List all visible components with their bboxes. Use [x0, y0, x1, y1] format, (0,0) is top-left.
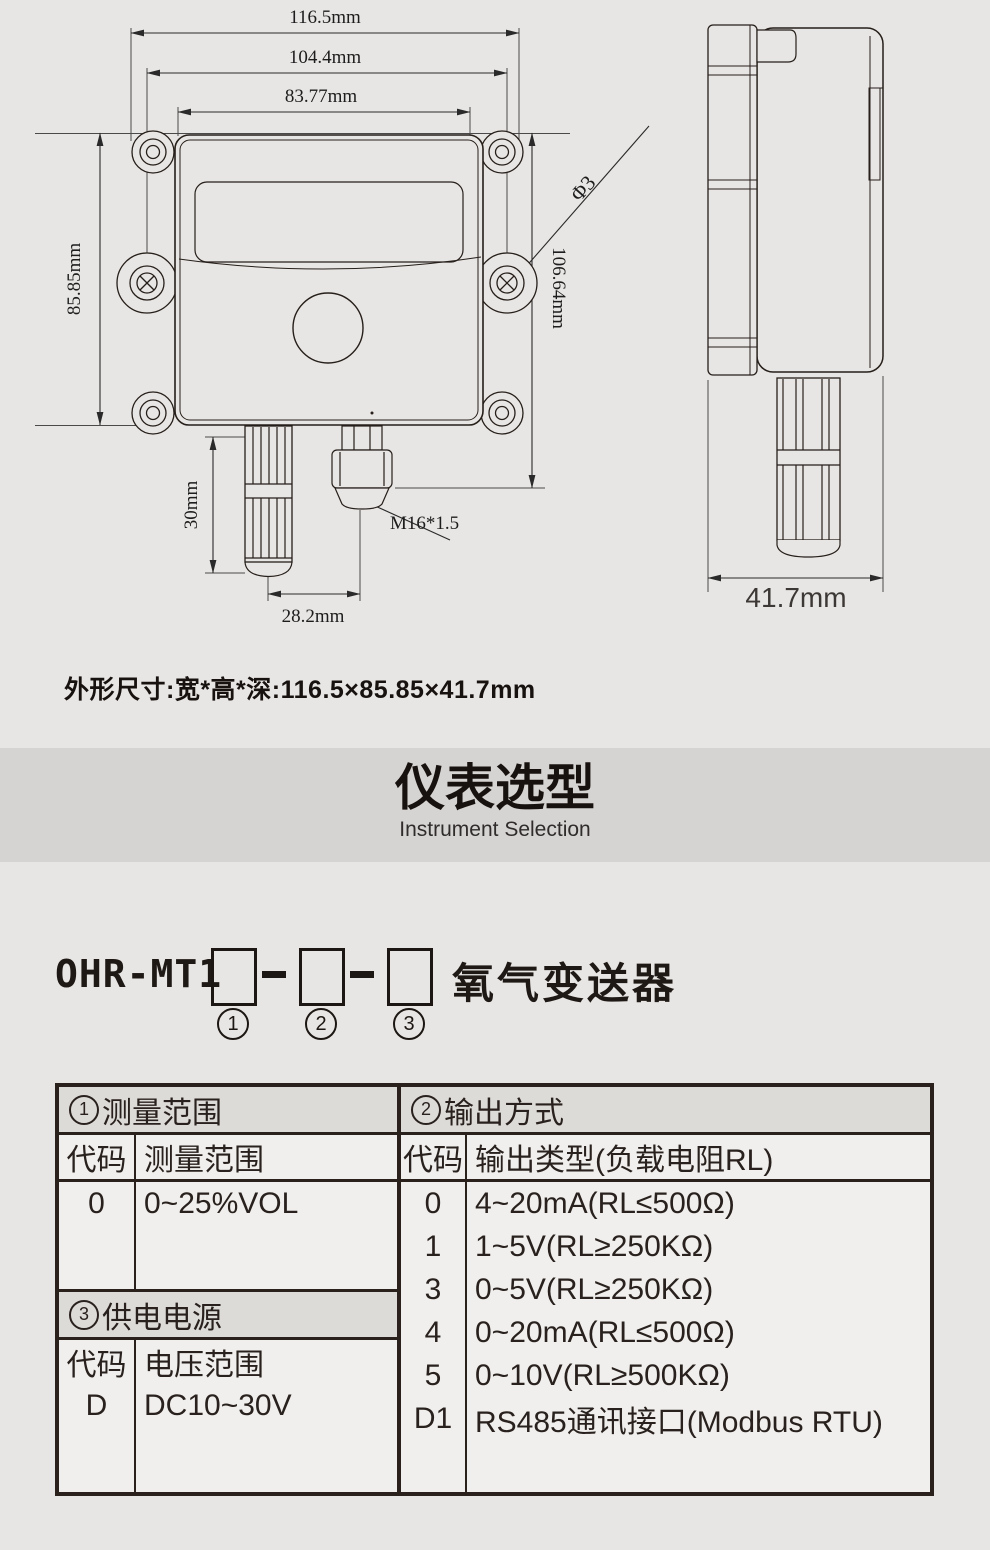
output-row-value: 1~5V(RL≥250KΩ)	[475, 1225, 713, 1268]
model-code-box-2	[299, 948, 345, 1006]
dimension-drawing: 116.5mm 104.4mm 83.77mm 85.85mm 106.64mm…	[0, 0, 990, 660]
power-row-value: DC10~30V	[144, 1384, 292, 1427]
output-row-value: 0~5V(RL≥250KΩ)	[475, 1268, 713, 1311]
output-row-code: D1	[401, 1397, 465, 1440]
position-marker-1: 1	[217, 1008, 249, 1040]
cable-gland	[332, 426, 392, 509]
output-row-code: 3	[401, 1268, 465, 1311]
hole-diameter-label: Φ3	[565, 171, 600, 206]
power-col-label: 电压范围	[144, 1340, 264, 1383]
output-row-code: 5	[401, 1354, 465, 1397]
output-col-code: 代码	[401, 1135, 465, 1179]
range-row-code: 0	[59, 1182, 134, 1225]
side-view	[708, 25, 883, 557]
range-row-value: 0~25%VOL	[144, 1182, 298, 1225]
output-row-code: 0	[401, 1182, 465, 1225]
side-flange	[708, 25, 757, 375]
dim-width-inner: 83.77mm	[285, 86, 358, 107]
circled-number-1: 1	[69, 1095, 99, 1125]
output-row-code: 1	[401, 1225, 465, 1268]
range-header: 1 测量范围	[69, 1087, 222, 1132]
thread-label: M16*1.5	[390, 513, 459, 534]
section-title: 仪表选型	[0, 760, 990, 816]
output-row-code: 4	[401, 1311, 465, 1354]
dim-width-mount-holes: 104.4mm	[289, 47, 362, 68]
output-row-value: 0~10V(RL≥500KΩ)	[475, 1354, 730, 1397]
output-row-value: 4~20mA(RL≤500Ω)	[475, 1182, 735, 1225]
range-header-label: 测量范围	[102, 1088, 222, 1132]
section-title-band: 仪表选型 Instrument Selection	[0, 748, 990, 862]
product-name: 氧气变送器	[452, 950, 677, 1011]
output-col-label: 输出类型(负载电阻RL)	[475, 1135, 773, 1179]
output-header: 2 输出方式	[411, 1087, 564, 1132]
circled-number-2: 2	[411, 1095, 441, 1125]
range-col-label: 测量范围	[144, 1135, 264, 1179]
dim-probe-offset: 28.2mm	[282, 606, 345, 627]
circled-number-3: 3	[69, 1300, 99, 1330]
grid-line	[134, 1340, 136, 1492]
dim-height: 85.85mm	[64, 243, 85, 316]
selection-table: 1 测量范围 代码 测量范围 0 0~25%VOL 3 供电电源 代码 电压范围…	[55, 1083, 934, 1496]
section-subtitle: Instrument Selection	[0, 818, 990, 842]
datasheet-page: 116.5mm 104.4mm 83.77mm 85.85mm 106.64mm…	[0, 0, 990, 1550]
output-row-value: 0~20mA(RL≤500Ω)	[475, 1311, 735, 1354]
range-col-code: 代码	[59, 1135, 134, 1179]
power-header: 3 供电电源	[69, 1292, 222, 1337]
probe-side	[777, 378, 840, 557]
dim-height-total: 106.64mm	[548, 247, 569, 329]
model-prefix: OHR-MT1	[55, 952, 222, 996]
dim-depth: 41.7mm	[745, 582, 846, 613]
power-row-code: D	[59, 1384, 134, 1427]
dim-width-overall: 116.5mm	[289, 7, 361, 28]
power-header-label: 供电电源	[102, 1293, 222, 1337]
model-dash-2	[350, 971, 374, 978]
position-marker-3: 3	[393, 1008, 425, 1040]
front-view	[117, 131, 537, 577]
dim-probe-length: 30mm	[181, 481, 202, 530]
position-marker-2: 2	[305, 1008, 337, 1040]
grid-line	[465, 1135, 467, 1492]
output-header-label: 输出方式	[444, 1088, 564, 1132]
probe-front	[245, 426, 292, 577]
overall-size-note: 外形尺寸:宽*高*深:116.5×85.85×41.7mm	[64, 670, 536, 706]
model-code-box-1	[211, 948, 257, 1006]
grid-line	[134, 1135, 136, 1289]
model-dash-1	[262, 971, 286, 978]
output-row-value: RS485通讯接口(Modbus RTU)	[475, 1397, 883, 1440]
power-col-code: 代码	[59, 1340, 134, 1383]
model-code-box-3	[387, 948, 433, 1006]
